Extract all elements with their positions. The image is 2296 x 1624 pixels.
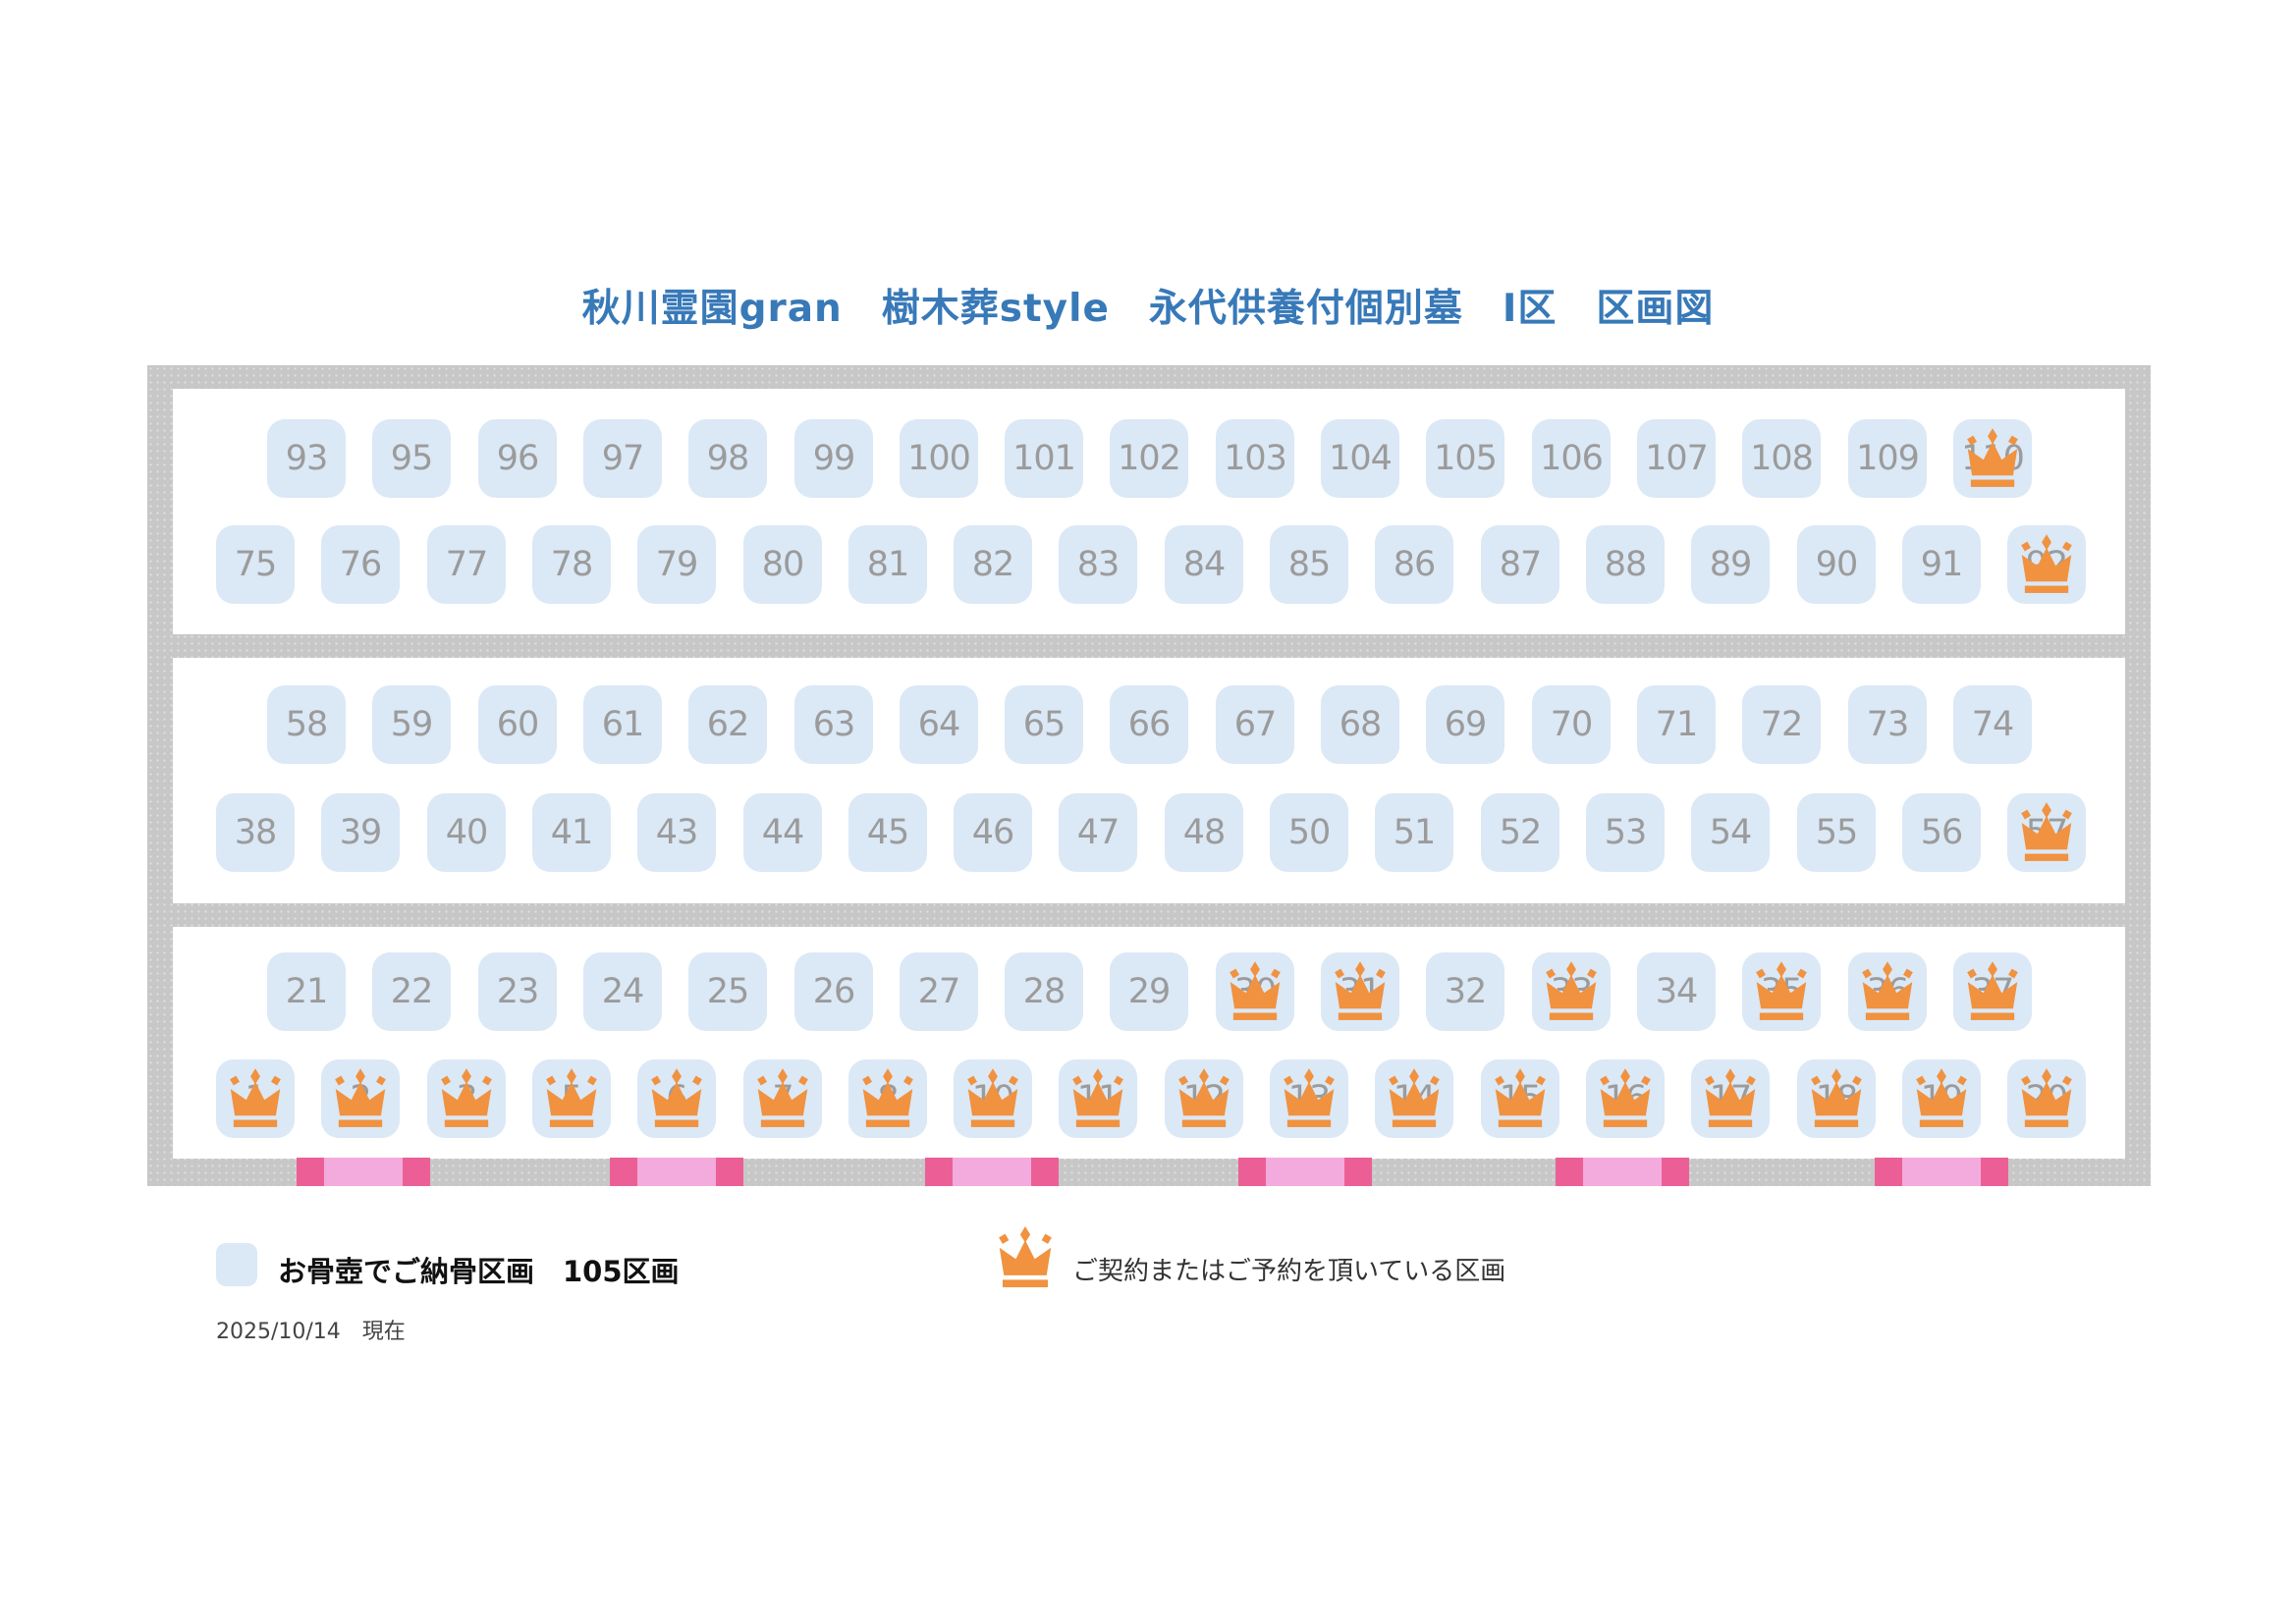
plot-110: 110 [1953, 419, 2032, 498]
plot-number: 95 [391, 442, 433, 476]
plot-16: 16 [1586, 1059, 1665, 1138]
crown-icon [225, 1067, 286, 1130]
plot-47: 47 [1059, 793, 1137, 872]
plot-73: 73 [1848, 685, 1927, 764]
plot-number: 86 [1394, 548, 1436, 582]
crown-icon [1490, 1067, 1551, 1130]
plot-number: 74 [1972, 708, 2014, 742]
plot-number: 23 [497, 975, 539, 1009]
plot-106: 106 [1532, 419, 1611, 498]
plot-63: 63 [794, 685, 873, 764]
plot-number: 21 [286, 975, 328, 1009]
path-marker-cap [1238, 1158, 1266, 1186]
plot-45: 45 [848, 793, 927, 872]
plot-5: 5 [532, 1059, 611, 1138]
plot-78: 78 [532, 525, 611, 604]
plot-85: 85 [1270, 525, 1348, 604]
plot-95: 95 [372, 419, 451, 498]
plot-number: 27 [918, 975, 960, 1009]
plot-75: 75 [216, 525, 295, 604]
plot-number: 72 [1761, 708, 1803, 742]
plot-87: 87 [1481, 525, 1559, 604]
plot-104: 104 [1321, 419, 1399, 498]
plot-30: 30 [1216, 952, 1294, 1031]
plot-93: 93 [267, 419, 346, 498]
plot-number: 38 [235, 816, 277, 850]
plot-number: 80 [762, 548, 804, 582]
plot-105: 105 [1426, 419, 1504, 498]
page-title: 秋川霊園gran 樹木葬style 永代供養付個別墓 Ⅰ区 区画図 [0, 278, 2296, 333]
plot-88: 88 [1586, 525, 1665, 604]
plot-number: 75 [235, 548, 277, 582]
path-marker [610, 1158, 743, 1186]
plot-70: 70 [1532, 685, 1611, 764]
plot-number: 79 [656, 548, 698, 582]
plot-number: 66 [1128, 708, 1171, 742]
path-marker-mid [1902, 1158, 1981, 1186]
plot-18: 18 [1797, 1059, 1876, 1138]
plot-102: 102 [1110, 419, 1188, 498]
plot-33: 33 [1532, 952, 1611, 1031]
plot-99: 99 [794, 419, 873, 498]
plot-46: 46 [954, 793, 1032, 872]
plot-number: 65 [1023, 708, 1066, 742]
plot-number: 43 [656, 816, 698, 850]
path-marker-mid [1583, 1158, 1662, 1186]
plot-number: 26 [813, 975, 855, 1009]
plot-38: 38 [216, 793, 295, 872]
plot-number: 107 [1645, 442, 1708, 476]
plot-number: 81 [867, 548, 909, 582]
plot-68: 68 [1321, 685, 1399, 764]
plot-109: 109 [1848, 419, 1927, 498]
plot-number: 48 [1183, 816, 1226, 850]
plot-number: 68 [1339, 708, 1382, 742]
plot-54: 54 [1691, 793, 1770, 872]
plot-number: 67 [1234, 708, 1277, 742]
plot-19: 19 [1902, 1059, 1981, 1138]
plot-67: 67 [1216, 685, 1294, 764]
path-marker-mid [324, 1158, 403, 1186]
plot-81: 81 [848, 525, 927, 604]
crown-icon [2016, 533, 2077, 596]
plot-number: 84 [1183, 548, 1226, 582]
path-marker [297, 1158, 430, 1186]
path-marker [1875, 1158, 2008, 1186]
path-marker-cap [1031, 1158, 1059, 1186]
path-marker-cap [716, 1158, 743, 1186]
plot-103: 103 [1216, 419, 1294, 498]
plot-6: 6 [637, 1059, 716, 1138]
plot-number: 101 [1012, 442, 1075, 476]
plot-28: 28 [1005, 952, 1083, 1031]
crown-icon [1384, 1067, 1445, 1130]
plot-2: 2 [321, 1059, 400, 1138]
plot-1: 1 [216, 1059, 295, 1138]
plot-100: 100 [900, 419, 978, 498]
plot-107: 107 [1637, 419, 1716, 498]
path-marker-cap [925, 1158, 953, 1186]
plot-number: 88 [1605, 548, 1647, 582]
plot-number: 52 [1500, 816, 1542, 850]
plot-90: 90 [1797, 525, 1876, 604]
plot-40: 40 [427, 793, 506, 872]
plot-97: 97 [583, 419, 662, 498]
plot-91: 91 [1902, 525, 1981, 604]
plot-72: 72 [1742, 685, 1821, 764]
crown-icon [994, 1223, 1057, 1292]
plot-83: 83 [1059, 525, 1137, 604]
plot-number: 83 [1077, 548, 1120, 582]
crown-icon [330, 1067, 391, 1130]
plot-98: 98 [688, 419, 767, 498]
plot-39: 39 [321, 793, 400, 872]
plot-76: 76 [321, 525, 400, 604]
plot-number: 41 [551, 816, 593, 850]
crown-icon [1806, 1067, 1867, 1130]
as-of-date: 2025/10/14 現在 [216, 1314, 406, 1345]
plot-number: 45 [867, 816, 909, 850]
plot-101: 101 [1005, 419, 1083, 498]
plot-number: 96 [497, 442, 539, 476]
plot-60: 60 [478, 685, 557, 764]
plot-23: 23 [478, 952, 557, 1031]
path-marker-cap [1981, 1158, 2008, 1186]
plot-number: 58 [286, 708, 328, 742]
plot-number: 60 [497, 708, 539, 742]
path-marker-mid [953, 1158, 1031, 1186]
plot-13: 13 [1270, 1059, 1348, 1138]
plot-number: 87 [1500, 548, 1542, 582]
plot-number: 90 [1816, 548, 1858, 582]
plot-35: 35 [1742, 952, 1821, 1031]
plot-89: 89 [1691, 525, 1770, 604]
plot-74: 74 [1953, 685, 2032, 764]
plot-number: 85 [1288, 548, 1331, 582]
plot-29: 29 [1110, 952, 1188, 1031]
plot-number: 70 [1551, 708, 1593, 742]
plot-82: 82 [954, 525, 1032, 604]
crown-icon [1700, 1067, 1761, 1130]
crown-icon [1857, 960, 1918, 1023]
plot-69: 69 [1426, 685, 1504, 764]
plot-number: 28 [1023, 975, 1066, 1009]
crown-icon [1595, 1067, 1656, 1130]
plot-number: 71 [1656, 708, 1698, 742]
crown-icon [541, 1067, 602, 1130]
crown-icon [646, 1067, 707, 1130]
plot-number: 50 [1288, 816, 1331, 850]
plot-number: 22 [391, 975, 433, 1009]
plot-number: 62 [707, 708, 749, 742]
crown-icon [1962, 427, 2023, 490]
plot-number: 93 [286, 442, 328, 476]
crown-icon [2016, 1067, 2077, 1130]
path-marker-cap [403, 1158, 430, 1186]
plot-50: 50 [1270, 793, 1348, 872]
plot-52: 52 [1481, 793, 1559, 872]
crown-icon [1911, 1067, 1972, 1130]
plot-12: 12 [1165, 1059, 1243, 1138]
path-marker [925, 1158, 1059, 1186]
plot-61: 61 [583, 685, 662, 764]
crown-icon [1174, 1067, 1234, 1130]
plot-44: 44 [743, 793, 822, 872]
plot-20: 20 [2007, 1059, 2086, 1138]
path-marker-cap [1344, 1158, 1372, 1186]
plot-92: 92 [2007, 525, 2086, 604]
plot-number: 61 [602, 708, 644, 742]
plot-11: 11 [1059, 1059, 1137, 1138]
plot-number: 44 [762, 816, 804, 850]
plot-number: 99 [813, 442, 855, 476]
plot-number: 78 [551, 548, 593, 582]
plot-number: 59 [391, 708, 433, 742]
legend-urn-plot-label: お骨壺でご納骨区画 105区画 [278, 1249, 680, 1290]
plot-map: 9395969798991001011021031041051061071081… [147, 365, 2151, 1186]
plot-number: 106 [1540, 442, 1603, 476]
legend-urn-plot-swatch [216, 1243, 257, 1286]
path-marker-mid [637, 1158, 716, 1186]
plot-14: 14 [1375, 1059, 1453, 1138]
plot-number: 46 [972, 816, 1014, 850]
plot-21: 21 [267, 952, 346, 1031]
plot-58: 58 [267, 685, 346, 764]
plot-32: 32 [1426, 952, 1504, 1031]
path-marker-cap [1556, 1158, 1583, 1186]
plot-number: 39 [340, 816, 382, 850]
plot-number: 54 [1710, 816, 1752, 850]
crown-icon [1225, 960, 1285, 1023]
plot-number: 76 [340, 548, 382, 582]
crown-icon [1751, 960, 1812, 1023]
plot-7: 7 [743, 1059, 822, 1138]
plot-number: 40 [446, 816, 488, 850]
plot-number: 100 [907, 442, 970, 476]
plot-56: 56 [1902, 793, 1981, 872]
plot-25: 25 [688, 952, 767, 1031]
plot-24: 24 [583, 952, 662, 1031]
crown-icon [1962, 960, 2023, 1023]
plot-number: 98 [707, 442, 749, 476]
plot-number: 97 [602, 442, 644, 476]
plot-27: 27 [900, 952, 978, 1031]
plot-number: 105 [1434, 442, 1497, 476]
plot-59: 59 [372, 685, 451, 764]
crown-icon [857, 1067, 918, 1130]
plot-number: 73 [1867, 708, 1909, 742]
plot-3: 3 [427, 1059, 506, 1138]
plot-number: 47 [1077, 816, 1120, 850]
path-marker [1238, 1158, 1372, 1186]
plot-number: 63 [813, 708, 855, 742]
plot-31: 31 [1321, 952, 1399, 1031]
plot-41: 41 [532, 793, 611, 872]
plot-number: 102 [1118, 442, 1180, 476]
plot-number: 109 [1856, 442, 1919, 476]
plot-number: 103 [1224, 442, 1286, 476]
plot-66: 66 [1110, 685, 1188, 764]
plot-number: 89 [1710, 548, 1752, 582]
plot-number: 64 [918, 708, 960, 742]
plot-80: 80 [743, 525, 822, 604]
crown-icon [1067, 1067, 1128, 1130]
plot-108: 108 [1742, 419, 1821, 498]
plot-55: 55 [1797, 793, 1876, 872]
crown-icon [436, 1067, 497, 1130]
crown-icon [1541, 960, 1602, 1023]
plot-64: 64 [900, 685, 978, 764]
plot-number: 53 [1605, 816, 1647, 850]
plot-number: 32 [1445, 975, 1487, 1009]
crown-icon [962, 1067, 1023, 1130]
plot-number: 77 [446, 548, 488, 582]
plot-8: 8 [848, 1059, 927, 1138]
plot-22: 22 [372, 952, 451, 1031]
plot-number: 34 [1656, 975, 1698, 1009]
plot-number: 108 [1750, 442, 1813, 476]
plot-number: 29 [1128, 975, 1171, 1009]
plot-36: 36 [1848, 952, 1927, 1031]
plot-71: 71 [1637, 685, 1716, 764]
plot-number: 69 [1445, 708, 1487, 742]
plot-84: 84 [1165, 525, 1243, 604]
plot-17: 17 [1691, 1059, 1770, 1138]
path-marker-cap [610, 1158, 637, 1186]
plot-65: 65 [1005, 685, 1083, 764]
crown-icon [752, 1067, 813, 1130]
plot-86: 86 [1375, 525, 1453, 604]
plot-number: 24 [602, 975, 644, 1009]
plot-62: 62 [688, 685, 767, 764]
plot-number: 104 [1329, 442, 1392, 476]
plot-77: 77 [427, 525, 506, 604]
crown-icon [2016, 801, 2077, 864]
plot-number: 56 [1921, 816, 1963, 850]
plot-79: 79 [637, 525, 716, 604]
path-marker-mid [1266, 1158, 1344, 1186]
plot-34: 34 [1637, 952, 1716, 1031]
plot-number: 82 [972, 548, 1014, 582]
plot-15: 15 [1481, 1059, 1559, 1138]
path-marker [1556, 1158, 1689, 1186]
plot-43: 43 [637, 793, 716, 872]
legend-reserved-label: ご契約またはご予約を頂いている区画 [1072, 1251, 1505, 1287]
plot-96: 96 [478, 419, 557, 498]
path-marker-cap [297, 1158, 324, 1186]
plot-number: 55 [1816, 816, 1858, 850]
plot-number: 25 [707, 975, 749, 1009]
plot-51: 51 [1375, 793, 1453, 872]
plot-26: 26 [794, 952, 873, 1031]
plot-48: 48 [1165, 793, 1243, 872]
plot-37: 37 [1953, 952, 2032, 1031]
crown-icon [1330, 960, 1391, 1023]
plot-number: 91 [1921, 548, 1963, 582]
plot-number: 51 [1394, 816, 1436, 850]
path-marker-cap [1875, 1158, 1902, 1186]
plot-53: 53 [1586, 793, 1665, 872]
path-marker-cap [1662, 1158, 1689, 1186]
plot-57: 57 [2007, 793, 2086, 872]
plot-10: 10 [954, 1059, 1032, 1138]
crown-icon [1279, 1067, 1339, 1130]
